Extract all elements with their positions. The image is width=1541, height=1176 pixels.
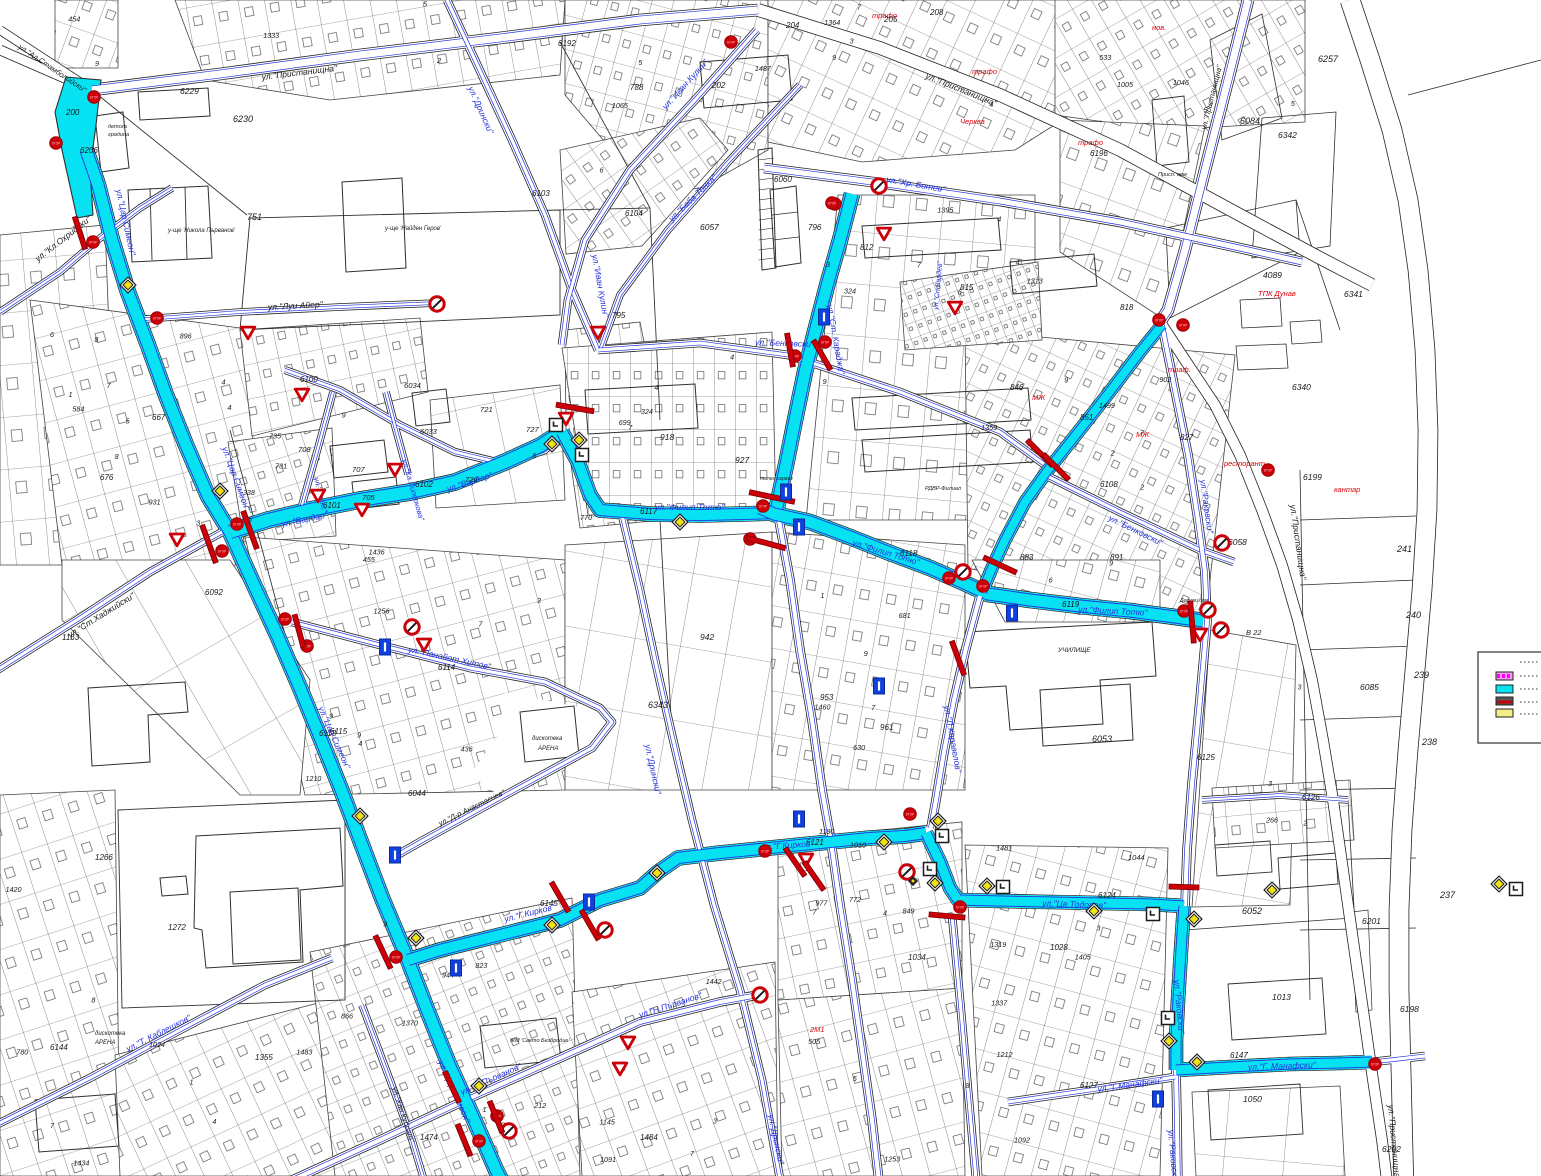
svg-text:896: 896 (180, 332, 192, 341)
svg-text:436: 436 (461, 745, 473, 754)
svg-text:STOP: STOP (52, 141, 61, 145)
svg-text:902: 902 (1159, 375, 1171, 384)
svg-text:Присп. арм: Присп. арм (1158, 172, 1187, 178)
svg-text:823: 823 (475, 961, 487, 970)
svg-text:траф.: траф. (1168, 365, 1191, 374)
svg-text:пътен сервиз: пътен сервиз (760, 476, 793, 482)
svg-text:ул."Бенковски": ул."Бенковски" (754, 337, 815, 349)
svg-text:1395: 1395 (937, 206, 954, 215)
svg-text:STOP: STOP (727, 40, 736, 44)
svg-text:STOP: STOP (761, 849, 770, 853)
svg-text:9: 9 (832, 53, 836, 62)
svg-text:1483: 1483 (296, 1047, 312, 1056)
svg-text:6058: 6058 (1228, 537, 1247, 547)
svg-text:1065: 1065 (612, 101, 629, 110)
svg-text:1434: 1434 (73, 1159, 89, 1168)
svg-text:1499: 1499 (1099, 401, 1115, 410)
svg-text:1: 1 (189, 1078, 193, 1087)
svg-text:Черква: Черква (960, 117, 985, 126)
svg-text:2: 2 (1139, 483, 1144, 492)
svg-text:849: 849 (902, 906, 914, 915)
svg-text:751: 751 (247, 212, 262, 222)
svg-text:6057: 6057 (700, 222, 719, 232)
svg-text:1319: 1319 (990, 940, 1006, 949)
svg-text:6196: 6196 (1090, 149, 1108, 158)
svg-text:STOP: STOP (90, 95, 99, 99)
svg-text:6034: 6034 (404, 381, 421, 390)
svg-text:204: 204 (785, 21, 800, 30)
svg-text:931: 931 (149, 498, 161, 507)
svg-text:681: 681 (899, 611, 911, 620)
svg-text:STOP: STOP (828, 201, 837, 205)
svg-text:6126: 6126 (1302, 793, 1320, 802)
svg-text:3: 3 (850, 37, 854, 46)
svg-text:212: 212 (533, 1101, 546, 1110)
svg-text:1091: 1091 (600, 1155, 616, 1164)
svg-text:STOP: STOP (218, 549, 227, 553)
svg-text:1420: 1420 (6, 885, 22, 894)
svg-text:454: 454 (68, 15, 80, 24)
svg-text:1355: 1355 (255, 1053, 273, 1062)
svg-text:1460: 1460 (815, 703, 831, 712)
svg-text:8: 8 (94, 335, 98, 344)
svg-text:1364: 1364 (824, 18, 840, 27)
svg-text:6343: 6343 (648, 700, 668, 710)
svg-text:6124: 6124 (1098, 891, 1116, 900)
svg-text:3: 3 (1298, 682, 1302, 691)
svg-text:9: 9 (864, 649, 868, 658)
svg-text:6053: 6053 (1092, 734, 1112, 744)
svg-text:4: 4 (654, 383, 658, 392)
svg-text:9: 9 (357, 731, 361, 740)
svg-text:8: 8 (966, 1081, 970, 1090)
svg-text:2М1: 2М1 (809, 1025, 825, 1034)
svg-text:STOP: STOP (1155, 318, 1164, 322)
svg-text:1028: 1028 (1050, 943, 1068, 952)
svg-text:4: 4 (883, 908, 887, 917)
svg-text:STOP: STOP (281, 617, 290, 621)
svg-text:9: 9 (823, 377, 827, 386)
svg-text:1210: 1210 (305, 774, 321, 783)
svg-text:1253: 1253 (884, 1154, 900, 1163)
svg-text:237: 237 (1439, 890, 1456, 900)
svg-text:3: 3 (537, 596, 541, 605)
svg-text:у-ще 'Никола Първанов': у-ще 'Никола Първанов' (167, 228, 236, 234)
svg-text:918: 918 (660, 432, 674, 442)
svg-text:1013: 1013 (1272, 992, 1291, 1002)
svg-text:812: 812 (860, 243, 874, 252)
svg-text:9: 9 (1064, 376, 1068, 385)
svg-text:699: 699 (619, 418, 631, 427)
svg-text:9: 9 (342, 411, 346, 420)
svg-text:РДВР-Филиал: РДВР-Филиал (925, 486, 961, 492)
svg-text:977: 977 (815, 898, 828, 907)
svg-text:584: 584 (72, 404, 84, 413)
svg-text:8: 8 (91, 996, 95, 1005)
svg-text:6: 6 (532, 451, 536, 460)
svg-text:1313: 1313 (1027, 277, 1043, 286)
svg-text:8: 8 (115, 452, 119, 461)
svg-text:детска: детска (108, 124, 127, 130)
svg-text:6201: 6201 (1362, 916, 1381, 926)
svg-text:АРЕНА: АРЕНА (94, 1040, 115, 1046)
svg-text:818: 818 (1120, 303, 1134, 312)
svg-text:6100: 6100 (300, 375, 318, 384)
svg-text:1256: 1256 (374, 606, 390, 615)
svg-text:6147: 6147 (1230, 1051, 1248, 1060)
svg-text:6341: 6341 (1344, 289, 1363, 299)
svg-text:708: 708 (298, 445, 311, 454)
svg-text:6108: 6108 (1100, 480, 1118, 489)
svg-text:3: 3 (1268, 779, 1272, 788)
svg-text:866: 866 (341, 1012, 353, 1021)
svg-text:1272: 1272 (168, 923, 186, 932)
svg-text:3: 3 (713, 1116, 717, 1125)
svg-text:6125: 6125 (1197, 753, 1215, 762)
svg-text:1266: 1266 (95, 853, 113, 862)
svg-text:STOP: STOP (1371, 1062, 1380, 1066)
svg-text:1145: 1145 (599, 1117, 615, 1126)
svg-text:МЖ: МЖ (1032, 393, 1046, 402)
svg-text:STOP: STOP (1264, 468, 1273, 472)
svg-text:1333: 1333 (263, 31, 279, 40)
svg-text:942: 942 (700, 632, 714, 642)
svg-text:891: 891 (1110, 553, 1123, 562)
svg-text:STOP: STOP (153, 316, 162, 320)
svg-text:266: 266 (1265, 815, 1278, 824)
svg-text:6192: 6192 (558, 39, 576, 48)
svg-text:455: 455 (363, 555, 376, 564)
svg-text:9: 9 (383, 920, 387, 929)
svg-text:2: 2 (436, 56, 441, 65)
svg-text:STOP: STOP (392, 955, 401, 959)
svg-text:707: 707 (352, 465, 365, 474)
svg-text:STOP: STOP (821, 340, 830, 344)
svg-text:6119: 6119 (1062, 600, 1080, 609)
svg-text:трафо: трафо (1078, 138, 1103, 147)
svg-text:STOP: STOP (1179, 323, 1188, 327)
svg-text:4: 4 (997, 215, 1001, 224)
svg-text:1: 1 (483, 1105, 487, 1114)
svg-text:6114: 6114 (438, 663, 456, 672)
svg-text:у-ще 'Найден Геров': у-ще 'Найден Геров' (384, 225, 442, 232)
svg-text:4: 4 (212, 1117, 216, 1126)
svg-text:1370: 1370 (402, 1018, 418, 1027)
svg-text:6342: 6342 (1278, 130, 1297, 140)
svg-text:676: 676 (100, 473, 114, 482)
svg-text:241: 241 (1396, 544, 1412, 554)
svg-text:324: 324 (844, 286, 856, 295)
svg-text:4: 4 (358, 739, 362, 748)
svg-text:1405: 1405 (1075, 952, 1092, 961)
svg-text:796: 796 (808, 223, 822, 232)
svg-text:6052: 6052 (1242, 906, 1262, 916)
svg-text:9: 9 (95, 59, 99, 68)
svg-text:УЧИЛИЩЕ: УЧИЛИЩЕ (1057, 647, 1091, 654)
svg-text:772: 772 (849, 895, 861, 904)
svg-text:827: 827 (1180, 433, 1194, 442)
svg-text:1180: 1180 (819, 827, 834, 836)
svg-text:МЖ: МЖ (1136, 430, 1150, 439)
svg-text:градина: градина (108, 132, 129, 138)
svg-text:705: 705 (362, 493, 375, 502)
svg-text:STOP: STOP (979, 584, 988, 588)
svg-text:846: 846 (1010, 383, 1024, 392)
svg-text:815: 815 (960, 283, 974, 292)
svg-text:6206: 6206 (80, 146, 98, 155)
svg-text:4: 4 (1016, 257, 1020, 266)
svg-text:1481: 1481 (996, 843, 1012, 852)
svg-text:4: 4 (730, 353, 734, 362)
svg-text:1034: 1034 (908, 953, 926, 962)
svg-text:927: 927 (735, 455, 749, 465)
svg-text:6104: 6104 (625, 209, 643, 218)
svg-text:1484: 1484 (640, 1133, 658, 1142)
svg-text:трафо: трафо (872, 11, 897, 20)
svg-text:STOP: STOP (233, 522, 242, 526)
svg-text:1: 1 (68, 390, 72, 399)
svg-text:6340: 6340 (1292, 382, 1311, 392)
svg-text:ЖМ 'Свето Безбродие': ЖМ 'Свето Безбродие' (509, 1038, 570, 1044)
svg-text:1212: 1212 (997, 1050, 1013, 1059)
svg-text:4: 4 (222, 378, 226, 387)
svg-text:1010: 1010 (850, 840, 866, 849)
svg-text:788: 788 (630, 83, 644, 92)
svg-text:1044: 1044 (1128, 853, 1145, 862)
svg-text:324: 324 (641, 407, 653, 416)
svg-text:STOP: STOP (475, 1139, 484, 1143)
svg-text:238: 238 (1421, 737, 1437, 747)
svg-text:6199: 6199 (1303, 472, 1322, 482)
svg-text:6085: 6085 (1360, 682, 1379, 692)
svg-text:505: 505 (808, 1037, 821, 1046)
svg-text:6084: 6084 (1240, 116, 1260, 126)
svg-text:4: 4 (228, 403, 232, 412)
svg-text:4089: 4089 (1263, 270, 1282, 280)
svg-text:780: 780 (16, 1047, 28, 1056)
svg-text:АРЕНА: АРЕНА (537, 746, 558, 752)
svg-text:1092: 1092 (1014, 1136, 1030, 1145)
svg-text:ресторант: ресторант (1223, 459, 1265, 468)
svg-text:STOP: STOP (945, 576, 954, 580)
svg-text:STOP: STOP (759, 504, 768, 508)
svg-text:ТПК Дунав: ТПК Дунав (1258, 289, 1296, 298)
svg-text:851: 851 (1080, 413, 1093, 422)
svg-text:кантар: кантар (1334, 485, 1360, 494)
svg-text:6033: 6033 (420, 427, 438, 436)
svg-text:6127: 6127 (1080, 1081, 1098, 1090)
svg-text:239: 239 (1413, 670, 1429, 680)
svg-text:6103: 6103 (532, 189, 550, 198)
svg-text:дискотека: дискотека (95, 1031, 126, 1037)
svg-text:953: 953 (820, 693, 834, 702)
svg-text:240: 240 (1405, 610, 1421, 620)
svg-text:ул."Филип Тотю": ул."Филип Тотю" (654, 502, 725, 512)
svg-text:1046: 1046 (1173, 78, 1189, 87)
svg-text:961: 961 (880, 723, 893, 732)
svg-text:1: 1 (820, 591, 824, 600)
svg-text:1442: 1442 (706, 977, 722, 986)
svg-text:2: 2 (1302, 819, 1307, 828)
svg-text:трафо: трафо (972, 67, 997, 76)
svg-text:6092: 6092 (205, 588, 223, 597)
svg-text:6: 6 (600, 166, 604, 175)
svg-text:735: 735 (269, 432, 282, 441)
svg-text:721: 721 (480, 405, 493, 414)
svg-text:6044: 6044 (408, 789, 426, 798)
svg-text:6198: 6198 (1400, 1004, 1419, 1014)
svg-text:770: 770 (580, 513, 592, 522)
svg-text:1337: 1337 (991, 999, 1008, 1008)
svg-text:6: 6 (50, 330, 54, 339)
svg-text:6060: 6060 (774, 175, 792, 184)
svg-text:STOP: STOP (906, 812, 915, 816)
svg-text:1487: 1487 (755, 64, 772, 73)
svg-text:3: 3 (1096, 924, 1100, 933)
svg-text:6257: 6257 (1318, 54, 1339, 64)
svg-text:533: 533 (1099, 53, 1111, 62)
svg-text:202: 202 (711, 81, 726, 90)
svg-text:795: 795 (612, 311, 626, 320)
svg-text:нов.: нов. (1152, 23, 1166, 32)
svg-text:727: 727 (526, 425, 539, 434)
svg-text:STOP: STOP (89, 240, 98, 244)
svg-text:1050: 1050 (1243, 1094, 1262, 1104)
svg-text:630: 630 (853, 743, 865, 752)
svg-text:дискотека: дискотека (532, 736, 563, 742)
svg-text:731: 731 (275, 461, 287, 470)
svg-text:6229: 6229 (180, 86, 199, 96)
svg-text:2: 2 (1110, 448, 1115, 457)
svg-text:1005: 1005 (1117, 80, 1134, 89)
svg-text:6144: 6144 (50, 1043, 68, 1052)
svg-text:3: 3 (826, 260, 830, 269)
svg-text:667: 667 (152, 413, 166, 422)
svg-text:726: 726 (465, 475, 478, 484)
svg-text:208: 208 (929, 8, 944, 17)
svg-text:STOP: STOP (956, 905, 965, 909)
svg-text:6: 6 (1049, 576, 1053, 585)
svg-text:883: 883 (1020, 553, 1034, 562)
svg-text:200: 200 (65, 108, 80, 117)
svg-text:1474: 1474 (420, 1133, 438, 1142)
svg-text:6230: 6230 (233, 114, 253, 124)
svg-text:B 22: B 22 (1246, 628, 1262, 637)
svg-text:1359: 1359 (981, 423, 997, 432)
svg-text:STOP: STOP (1180, 609, 1189, 613)
